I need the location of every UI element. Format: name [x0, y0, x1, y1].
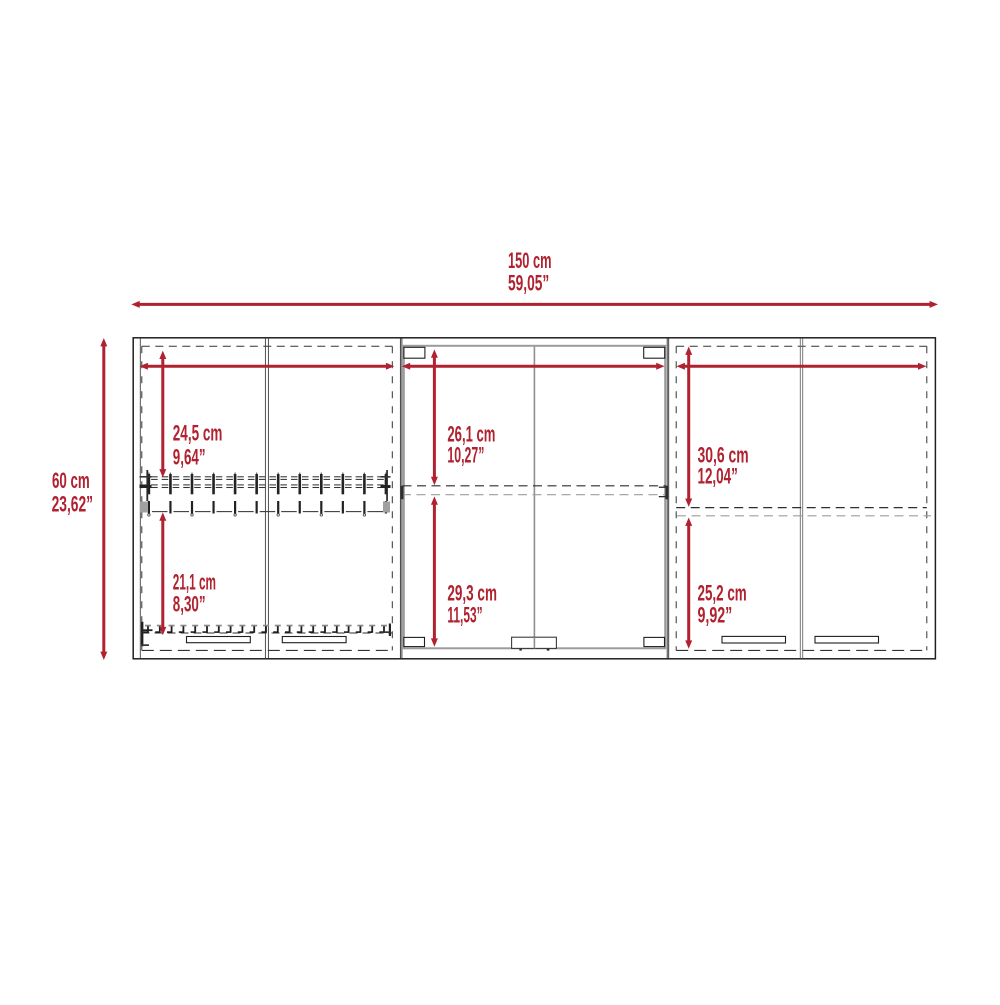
- svg-text:60 cm: 60 cm: [52, 469, 90, 493]
- svg-text:12,04”: 12,04”: [698, 464, 738, 488]
- svg-text:8,30”: 8,30”: [173, 592, 206, 616]
- svg-text:9,92”: 9,92”: [698, 602, 733, 627]
- svg-text:21,1 cm: 21,1 cm: [173, 570, 216, 595]
- svg-text:59,05”: 59,05”: [508, 270, 549, 295]
- svg-text:23,62”: 23,62”: [52, 491, 93, 516]
- svg-text:9,64”: 9,64”: [173, 445, 206, 469]
- svg-text:24,5 cm: 24,5 cm: [173, 420, 223, 445]
- svg-text:11,53”: 11,53”: [447, 602, 482, 627]
- svg-text:10,27”: 10,27”: [447, 443, 484, 468]
